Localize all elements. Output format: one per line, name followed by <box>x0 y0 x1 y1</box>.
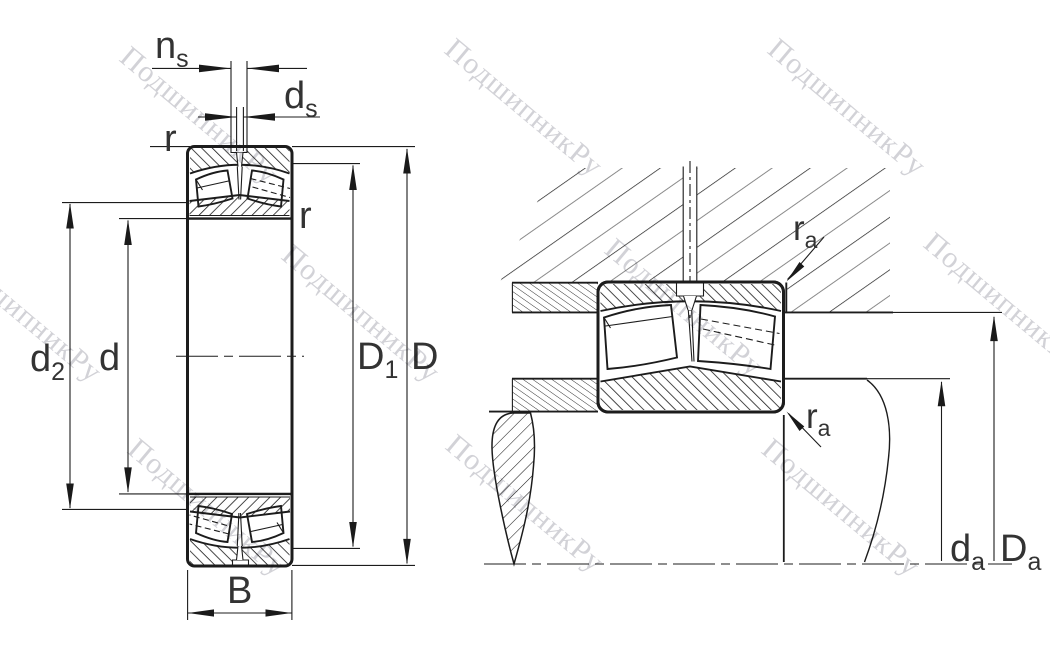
drawing-canvas: ns ds r r d2 d D1 D B <box>0 0 1050 650</box>
bearing-technical-drawing: ns ds r r d2 d D1 D B <box>0 0 1050 650</box>
roller-left <box>604 305 677 369</box>
watermark-text: ПодшипникРу <box>439 32 610 183</box>
label-B: B <box>227 570 252 612</box>
right-mounting-view: ra ra da Da <box>484 161 1041 576</box>
label-Da: Da <box>1000 528 1041 576</box>
watermark-text: ПодшипникРу <box>756 432 927 583</box>
label-da: da <box>950 528 985 576</box>
label-ra-bottom: ra <box>806 397 831 441</box>
ra-callout-bottom: ra <box>787 397 831 447</box>
shaft-abutment-band <box>512 379 598 412</box>
housing-abutment-band <box>512 283 598 313</box>
right-view-dimensions: da Da <box>938 316 1042 576</box>
watermark-text: ПодшипникРу <box>918 226 1050 377</box>
label-ds: ds <box>284 75 318 123</box>
label-r-side: r <box>299 195 312 237</box>
watermark-text: ПодшипникРу <box>762 32 933 183</box>
label-r-top: r <box>164 118 177 160</box>
